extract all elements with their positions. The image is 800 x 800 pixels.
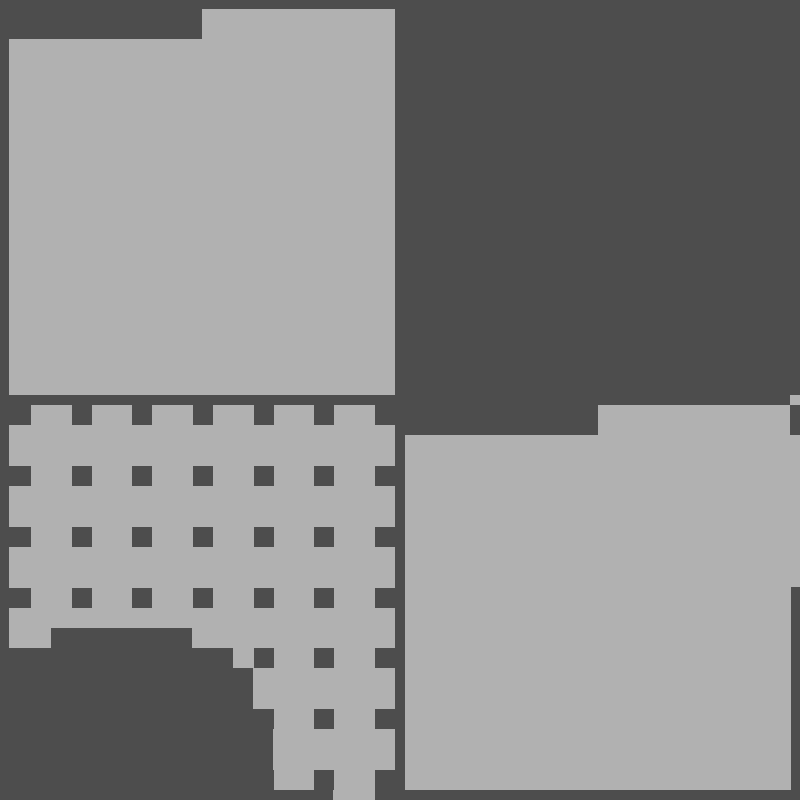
waffle-holes-r2-c0: [9, 527, 31, 547]
waffle-holes-r4-c3: [193, 648, 213, 668]
waffle-holes-r1-c3: [193, 466, 213, 486]
waffle-holes-r2-c1: [72, 527, 92, 547]
waffle-holes-r3-c1: [72, 588, 92, 608]
waffle-holes-r0-c6: [375, 405, 395, 425]
waffle-holes-r5-c1: [72, 709, 92, 729]
waffle-holes-r3-c6: [375, 588, 395, 608]
waffle-holes-r3-c3: [193, 588, 213, 608]
waffle-holes-r1-c1: [72, 466, 92, 486]
waffle-holes-r4-c4: [254, 648, 274, 668]
waffle-holes-r2-c5: [314, 527, 334, 547]
waffle-holes-r0-c0: [9, 405, 31, 425]
folder-block-bottom-right: [405, 405, 800, 790]
waffle-holes-r5-c3: [193, 709, 213, 729]
waffle-holes-r4-c1: [72, 648, 92, 668]
waffle-holes-r5-c0: [9, 709, 31, 729]
waffle-holes-r1-c5: [314, 466, 334, 486]
waffle-holes-r0-c2: [132, 405, 152, 425]
waffle-holes-r2-c2: [132, 527, 152, 547]
waffle-holes-r2-c6: [375, 527, 395, 547]
stray-pixel-top-right-of-folder: [790, 395, 800, 405]
waffle-holes-r1-c6: [375, 466, 395, 486]
waffle-holes-r2-c3: [193, 527, 213, 547]
waffle-holes-r6-c1: [72, 770, 92, 790]
waffle-holes-r3-c5: [314, 588, 334, 608]
folder-block-top-left: [9, 9, 395, 395]
waffle-holes-r0-c3: [193, 405, 213, 425]
waffle-holes-r6-c4: [254, 770, 274, 790]
waffle-holes-r3-c4: [254, 588, 274, 608]
waffle-holes-r0-c1: [72, 405, 92, 425]
waffle-holes-r6-c5: [314, 770, 334, 790]
waffle-holes-r6-c6: [375, 770, 395, 790]
waffle-holes-r1-c2: [132, 466, 152, 486]
waffle-holes-r0-c5: [314, 405, 334, 425]
waffle-holes-r6-c2: [132, 770, 152, 790]
waffle-holes-r5-c5: [314, 709, 334, 729]
pixel-art-svg: [0, 0, 800, 800]
waffle-holes-r3-c2: [132, 588, 152, 608]
waffle-holes-r2-c4: [254, 527, 274, 547]
waffle-holes-r5-c4: [254, 709, 274, 729]
waffle-holes-r1-c0: [9, 466, 31, 486]
waffle-holes-r5-c6: [375, 709, 395, 729]
waffle-holes-r4-c2: [132, 648, 152, 668]
waffle-holes-r6-c0: [9, 770, 31, 790]
pixel-art-canvas: [0, 0, 800, 800]
waffle-holes-r4-c6: [375, 648, 395, 668]
waffle-holes-r0-c4: [254, 405, 274, 425]
waffle-holes-r4-c0: [9, 648, 31, 668]
waffle-holes-r5-c2: [132, 709, 152, 729]
waffle-holes-r6-c3: [193, 770, 213, 790]
waffle-holes-r4-c5: [314, 648, 334, 668]
waffle-holes-r1-c4: [254, 466, 274, 486]
waffle-holes-r3-c0: [9, 588, 31, 608]
